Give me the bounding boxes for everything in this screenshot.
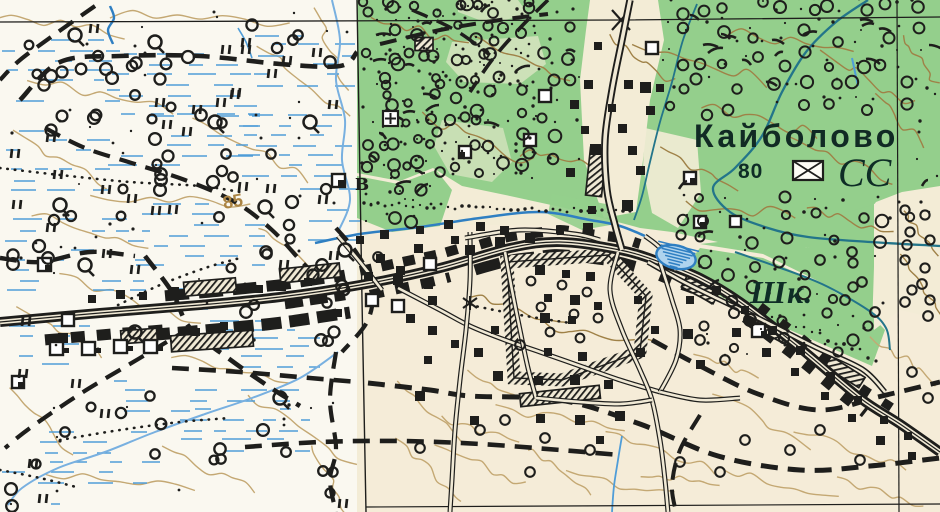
svg-text:80: 80: [738, 160, 763, 183]
svg-text:85: 85: [221, 190, 244, 213]
svg-text:в: в: [355, 167, 369, 196]
svg-text:Шк.: Шк.: [749, 274, 813, 310]
svg-text:Кайболово: Кайболово: [694, 118, 899, 154]
svg-text:CC: CC: [838, 150, 893, 195]
